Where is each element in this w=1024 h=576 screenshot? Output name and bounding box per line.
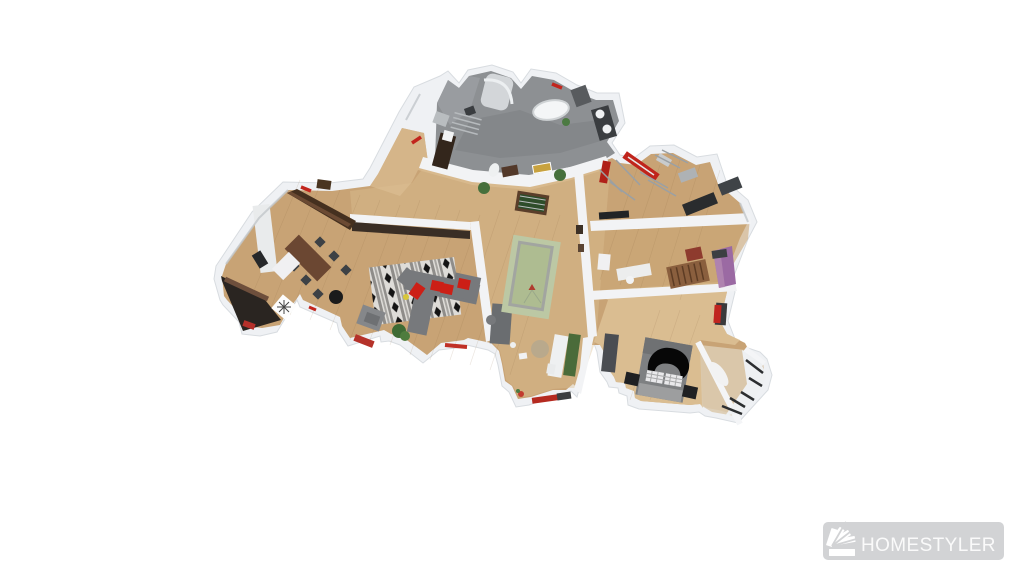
svg-text:HOMESTYLER: HOMESTYLER <box>861 535 996 556</box>
